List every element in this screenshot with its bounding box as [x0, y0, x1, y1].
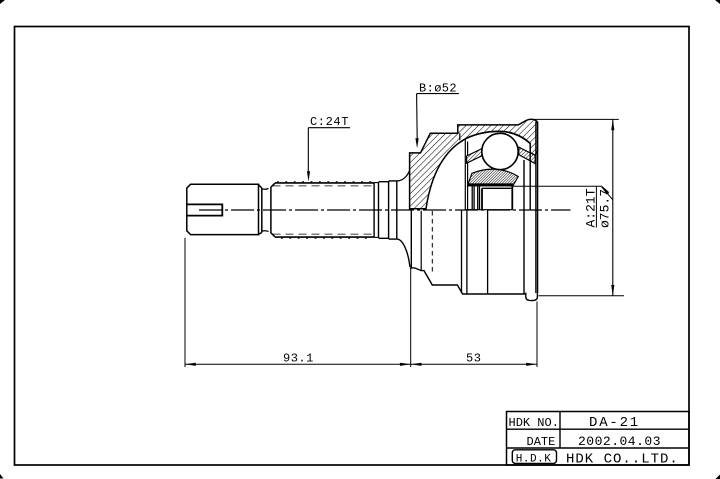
svg-text:93.1: 93.1	[283, 352, 314, 366]
svg-text:HDK NO.: HDK NO.	[509, 416, 559, 430]
svg-text:ø75.7: ø75.7	[598, 189, 613, 228]
svg-text:53: 53	[466, 352, 481, 366]
svg-text:DA-21: DA-21	[589, 415, 640, 431]
svg-text:H.D.K: H.D.K	[516, 453, 552, 465]
svg-text:HDK CO..LTD.: HDK CO..LTD.	[566, 451, 679, 467]
svg-text:2002.04.03: 2002.04.03	[578, 434, 661, 449]
svg-text:C:24T: C:24T	[310, 115, 349, 129]
svg-text:DATE: DATE	[527, 435, 556, 449]
